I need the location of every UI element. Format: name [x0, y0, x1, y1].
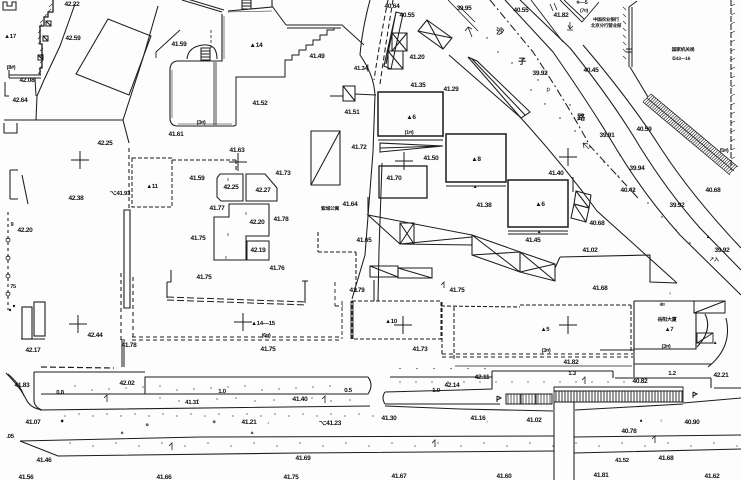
svg-text:①43—16: ①43—16: [672, 56, 691, 62]
svg-text:42.22: 42.22: [64, 1, 80, 8]
svg-text:1.0: 1.0: [218, 388, 227, 395]
svg-text:紫城公寓: 紫城公寓: [321, 205, 340, 212]
svg-text:41.60: 41.60: [496, 473, 512, 480]
svg-text:42.27: 42.27: [255, 187, 271, 194]
svg-text:41.52: 41.52: [615, 457, 630, 464]
svg-text:中国农业银行: 中国农业银行: [593, 17, 620, 22]
svg-text:41.67: 41.67: [391, 473, 407, 480]
svg-text:0.5: 0.5: [344, 387, 353, 394]
svg-text:41.69: 41.69: [295, 455, 311, 462]
svg-text:41.38: 41.38: [476, 202, 492, 209]
svg-text:41.73: 41.73: [275, 170, 291, 177]
svg-text:42.11: 42.11: [475, 374, 490, 381]
svg-text:41.81: 41.81: [593, 472, 609, 479]
svg-text:国家机关局: 国家机关局: [672, 46, 695, 53]
svg-text:41.82: 41.82: [563, 359, 579, 366]
svg-text:.05: .05: [6, 433, 15, 440]
svg-text:1.0: 1.0: [432, 387, 441, 394]
svg-text:41.40: 41.40: [292, 396, 308, 403]
svg-text:▲7: ▲7: [665, 326, 675, 333]
svg-text:39.92: 39.92: [532, 70, 548, 77]
svg-text:41.51: 41.51: [344, 109, 360, 116]
svg-text:41.76: 41.76: [269, 265, 285, 272]
svg-text:41.75: 41.75: [260, 346, 276, 353]
svg-text:41.34▏: 41.34▏: [354, 64, 372, 72]
svg-text:1.2: 1.2: [668, 370, 677, 377]
svg-text:♀: ♀: [486, 419, 489, 424]
svg-text:39.95: 39.95: [456, 5, 472, 12]
svg-text:41.82: 41.82: [553, 12, 569, 19]
svg-text:41.40: 41.40: [548, 170, 564, 177]
svg-text:42.02: 42.02: [119, 380, 135, 387]
svg-text:▲14: ▲14: [250, 42, 264, 49]
svg-text:▲17: ▲17: [4, 33, 17, 40]
svg-text:39.94: 39.94: [629, 165, 645, 172]
svg-text:子: 子: [518, 57, 526, 66]
svg-text:41.65: 41.65: [356, 237, 372, 244]
svg-text:⌥41.93: ⌥41.93: [110, 190, 131, 197]
svg-text:41.59: 41.59: [171, 41, 187, 48]
svg-text:42.21: 42.21: [713, 372, 729, 379]
svg-text:42.19: 42.19: [250, 247, 266, 254]
svg-text:岳阳大厦: 岳阳大厦: [657, 316, 677, 323]
svg-text:39.92: 39.92: [669, 202, 685, 209]
svg-text:41.07: 41.07: [25, 419, 41, 426]
svg-text:(7⌗): (7⌗): [580, 8, 589, 14]
svg-text:▲11: ▲11: [146, 183, 158, 190]
svg-text:41.63: 41.63: [229, 147, 245, 154]
svg-text:沙: 沙: [496, 27, 504, 36]
svg-text:39.91: 39.91: [599, 132, 615, 139]
svg-text:(8#): (8#): [7, 65, 16, 71]
svg-text:40.90: 40.90: [684, 419, 700, 426]
svg-text:▲8: ▲8: [471, 156, 481, 163]
svg-text:(1⌗): (1⌗): [405, 130, 414, 136]
svg-text:42.08: 42.08: [19, 77, 35, 84]
svg-text:41.02: 41.02: [526, 417, 542, 424]
svg-text:41.45: 41.45: [525, 237, 541, 244]
svg-text:40.68: 40.68: [705, 187, 721, 194]
svg-text:40.78: 40.78: [621, 428, 637, 435]
svg-text:41.16: 41.16: [470, 415, 486, 422]
svg-text:0.8: 0.8: [56, 389, 65, 396]
svg-text:41.83: 41.83: [14, 382, 30, 389]
svg-text:41.52: 41.52: [252, 100, 268, 107]
svg-text:(3⌗): (3⌗): [542, 348, 551, 354]
svg-text:41.50: 41.50: [423, 155, 439, 162]
svg-text:41.61: 41.61: [168, 131, 184, 138]
svg-text:1.3: 1.3: [568, 370, 577, 377]
svg-text:41.75: 41.75: [190, 235, 206, 242]
svg-text:41.78: 41.78: [121, 342, 137, 349]
svg-text:♀: ♀: [659, 418, 662, 423]
svg-text:41.78: 41.78: [273, 216, 289, 223]
svg-text:⌗—5: ⌗—5: [576, 0, 588, 6]
svg-text:41.68: 41.68: [658, 455, 674, 462]
svg-text:40.82: 40.82: [632, 378, 648, 385]
svg-text:▲10: ▲10: [385, 318, 398, 325]
svg-text:42.20: 42.20: [17, 227, 33, 234]
svg-text:42.25: 42.25: [97, 140, 113, 147]
svg-text:⊚: ⊚: [251, 431, 254, 435]
svg-text:75: 75: [10, 284, 16, 290]
svg-text:41.29: 41.29: [443, 86, 459, 93]
svg-text:42.14: 42.14: [444, 382, 460, 389]
svg-text:(6⌗): (6⌗): [262, 333, 271, 339]
svg-text:▲14—15: ▲14—15: [251, 320, 276, 327]
svg-text:⌥41.23: ⌥41.23: [319, 420, 342, 427]
svg-text:42.17: 42.17: [25, 347, 41, 354]
svg-text:42.25: 42.25: [223, 184, 239, 191]
svg-text:40.55: 40.55: [513, 7, 529, 14]
svg-text:41.21: 41.21: [241, 419, 257, 426]
svg-text:9: 9: [11, 222, 14, 228]
svg-text:41.30: 41.30: [381, 415, 397, 422]
svg-text:41.35: 41.35: [410, 82, 426, 89]
svg-text:路: 路: [577, 113, 586, 122]
svg-text:▲6: ▲6: [406, 114, 416, 121]
svg-text:42.59: 42.59: [65, 35, 81, 42]
svg-text:4⌗: 4⌗: [659, 302, 665, 308]
svg-text:(5⌗): (5⌗): [720, 148, 729, 154]
svg-text:北京分行营业部: 北京分行营业部: [591, 22, 622, 28]
svg-text:42.64: 42.64: [12, 97, 28, 104]
svg-text:41.49: 41.49: [309, 53, 325, 60]
svg-text:41.02: 41.02: [582, 247, 598, 254]
svg-text:39.92: 39.92: [714, 247, 730, 254]
svg-text:41.77: 41.77: [209, 205, 225, 212]
svg-text:42.44: 42.44: [87, 332, 103, 339]
svg-text:41.20: 41.20: [409, 54, 425, 61]
svg-text:41.79: 41.79: [349, 287, 365, 294]
svg-text:42.38: 42.38: [68, 195, 84, 202]
svg-text:41.75: 41.75: [196, 274, 212, 281]
svg-text:41.72: 41.72: [351, 144, 367, 151]
svg-text:41.68: 41.68: [592, 285, 608, 292]
svg-text:40.68: 40.68: [589, 220, 605, 227]
svg-text:41.56: 41.56: [18, 474, 34, 480]
svg-text:41.75: 41.75: [283, 474, 299, 480]
svg-text:(3⌗): (3⌗): [197, 120, 206, 126]
svg-text:▲6: ▲6: [535, 201, 545, 208]
svg-text:↗入: ↗入: [709, 256, 719, 263]
svg-text:41.64: 41.64: [342, 201, 358, 208]
svg-text:41.73: 41.73: [412, 346, 428, 353]
svg-text:40.45: 40.45: [583, 67, 599, 74]
svg-text:▲5: ▲5: [541, 326, 551, 333]
svg-text:41.75: 41.75: [449, 287, 465, 294]
svg-text:♀: ♀: [668, 291, 672, 297]
svg-text:41.59: 41.59: [189, 175, 205, 182]
svg-text:41.70: 41.70: [386, 175, 402, 182]
svg-text:40.59: 40.59: [636, 126, 652, 133]
svg-text:41.62: 41.62: [704, 473, 720, 480]
svg-text:41.46: 41.46: [36, 457, 52, 464]
svg-text:42.20: 42.20: [249, 219, 265, 226]
svg-text:41.66: 41.66: [156, 474, 172, 480]
svg-text:↓: ↓: [267, 420, 269, 426]
svg-text:40.64: 40.64: [384, 3, 400, 10]
svg-text:⊚: ⊚: [121, 431, 124, 435]
